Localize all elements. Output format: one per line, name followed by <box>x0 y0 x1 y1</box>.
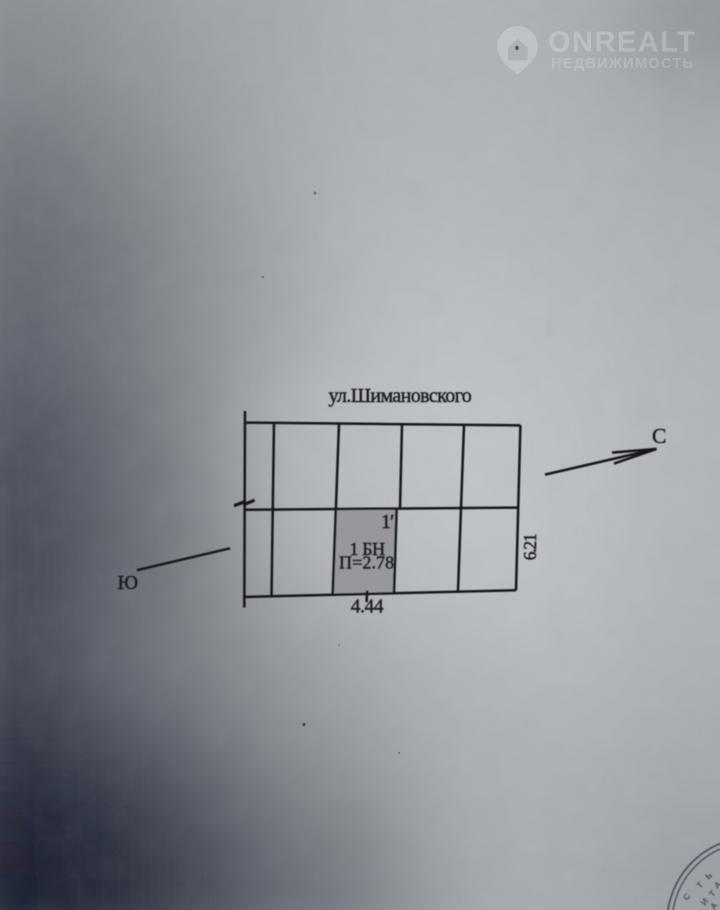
svg-text:С: С <box>652 424 666 448</box>
svg-text:ONREALT: ONREALT <box>548 27 697 59</box>
svg-text:1′: 1′ <box>381 511 394 533</box>
svg-text:4.44: 4.44 <box>351 596 384 617</box>
svg-text:П=2.78: П=2.78 <box>339 553 394 573</box>
svg-text:НЕДВИЖИМОСТЬ: НЕДВИЖИМОСТЬ <box>551 56 694 72</box>
svg-text:6.21: 6.21 <box>520 534 540 560</box>
svg-text:Ю: Ю <box>118 572 139 594</box>
svg-text:ул.Шимановского: ул.Шимановского <box>329 385 472 407</box>
